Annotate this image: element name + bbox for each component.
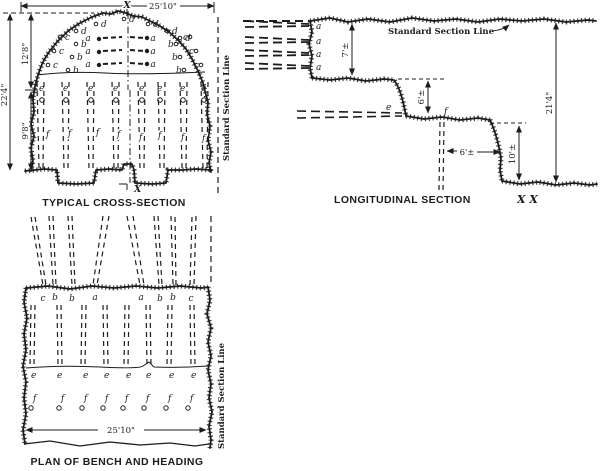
- hole-letter-f: f: [32, 394, 38, 404]
- hole-letter-a: a: [85, 34, 90, 44]
- plan-caption: PLAN OF BENCH AND HEADING: [31, 456, 204, 468]
- hole-letter-f: f: [138, 133, 144, 143]
- lower-bench-label: 10'±: [508, 144, 518, 164]
- hole-letter-d: d: [101, 20, 107, 30]
- hole-letter-a: a: [150, 34, 155, 44]
- hole-letter-e: e: [169, 371, 174, 381]
- hole-letter-f: f: [83, 394, 89, 404]
- hole-letter-c: c: [65, 33, 70, 43]
- hole-letter-d: d: [129, 15, 135, 25]
- hole-letter-e: e: [139, 84, 144, 94]
- hole-letter-f: f: [104, 394, 110, 404]
- tunnel-blasting-figure: 25'10" X 22'4" 12'8" 9'8" X d d d: [0, 0, 600, 471]
- cross-section-panel: 25'10" X 22'4" 12'8" 9'8" X d d d: [0, 0, 232, 209]
- hole-letter-f: f: [157, 131, 163, 141]
- a-cut-holes: a a a a a a: [85, 34, 155, 70]
- hole-letter-e: e: [126, 371, 131, 381]
- hole-letter: b: [157, 294, 163, 304]
- break-line: [24, 441, 209, 446]
- section-line-label: Standard Section Line: [222, 54, 232, 161]
- heading-fan-holes: [31, 216, 196, 285]
- cross-section-caption: TYPICAL CROSS-SECTION: [42, 197, 186, 209]
- standard-section-line: Standard Section Line: [218, 17, 232, 193]
- total-height-label: 22'4": [0, 84, 10, 107]
- hole-letter: c: [40, 294, 45, 304]
- section-line-label: Standard Section Line: [388, 27, 495, 37]
- f-holes: f f f f f f f f: [45, 128, 207, 144]
- hole-letter-e: e: [386, 103, 391, 113]
- hole-letter: b: [69, 294, 75, 304]
- hole-letter-e: e: [191, 371, 196, 381]
- hole-letter-e: e: [88, 84, 93, 94]
- hole-letter-f: f: [116, 130, 122, 140]
- hole-letter: a: [92, 293, 97, 303]
- hole-letter-f: f: [167, 394, 173, 404]
- longitudinal-caption: LONGITUDINAL SECTION X X: [334, 193, 538, 206]
- hole-letter-e: e: [146, 371, 151, 381]
- hole-letter-a: a: [316, 63, 321, 73]
- hole-letter-f: f: [180, 133, 186, 143]
- hole-letter-f: f: [60, 394, 66, 404]
- hole-letter-c: c: [194, 61, 199, 71]
- e-holes: e e e e e e e e: [31, 371, 196, 381]
- plan-rock-edges: [23, 286, 212, 448]
- hole-letter-a: a: [85, 47, 90, 57]
- hole-letter: b: [170, 293, 176, 303]
- plan-width-dimension: 25'10": [26, 426, 206, 436]
- section-marker-bottom: X: [133, 184, 142, 195]
- height-dimensions: 22'4" 12'8" 9'8": [0, 13, 94, 170]
- hole-letter-a: a: [150, 47, 155, 57]
- hole-letter-a: a: [316, 37, 321, 47]
- section-line-label: Standard Section Line: [217, 342, 227, 449]
- hole-letter-e: e: [83, 371, 88, 381]
- hole-letter-c: c: [183, 33, 188, 43]
- hole-letter-f: f: [145, 394, 151, 404]
- bench-hole-lines: [37, 82, 208, 168]
- hole-letter-a: a: [85, 60, 90, 70]
- figure-canvas: 25'10" X 22'4" 12'8" 9'8" X d d d: [0, 0, 600, 471]
- hole-letter: b: [52, 293, 58, 303]
- face-letter-row: c b b a a b b c: [40, 293, 193, 304]
- burden-label: 6'±: [460, 148, 475, 158]
- longitudinal-section-panel: a a a a e f 7'± 6'± 6'±: [243, 18, 597, 206]
- plan-panel: c b b a a b b c e e e e e e: [23, 216, 227, 468]
- hole-letter-c: c: [189, 47, 194, 57]
- upper-bench-label: 6'±: [417, 90, 427, 105]
- hole-letter-b: b: [73, 66, 79, 76]
- hole-letter-b: b: [77, 53, 83, 63]
- hole-letter-f: f: [201, 134, 207, 144]
- hole-letter-f: f: [67, 129, 73, 139]
- hole-letter: c: [188, 294, 193, 304]
- b-holes: b b b b b b: [66, 40, 186, 76]
- width-dim-label: 25'10": [107, 426, 135, 436]
- bench-edge-line: [26, 362, 208, 368]
- bench-e-hole: e: [297, 103, 402, 118]
- hole-letter-e: e: [31, 371, 36, 381]
- e-holes: e e e e e e e e: [39, 84, 206, 102]
- heading-height-label: 12'8": [21, 43, 31, 66]
- hole-letter-f: f: [189, 394, 195, 404]
- hole-letter-f: f: [124, 394, 130, 404]
- hole-letter-e: e: [57, 371, 62, 381]
- hole-letter-f: f: [95, 128, 101, 138]
- hole-letter-f: f: [45, 130, 51, 140]
- longitudinal-dimensions: 7'± 6'± 6'± 10'± 21'4": [341, 23, 556, 182]
- hole-letter-c: c: [59, 47, 64, 57]
- hole-letter: a: [138, 293, 143, 303]
- hole-letter-a: a: [316, 50, 321, 60]
- hole-letter-c: c: [53, 61, 58, 71]
- hole-letter-e: e: [104, 371, 109, 381]
- standard-section-line-callout: Standard Section Line: [388, 25, 509, 37]
- hole-letter-b: b: [176, 66, 182, 76]
- hole-letter-b: b: [168, 40, 174, 50]
- hole-letter-d: d: [172, 27, 178, 37]
- total-height-label: 21'4": [545, 92, 555, 115]
- caption-marker: X X: [516, 193, 538, 206]
- hole-letter-a: a: [316, 22, 321, 32]
- hole-letter-a: a: [150, 60, 155, 70]
- caption-text: LONGITUDINAL SECTION: [334, 194, 471, 206]
- hole-letter-d: d: [153, 20, 159, 30]
- bench-hole-lines: [30, 305, 195, 365]
- heading-height-label: 7'±: [341, 43, 351, 58]
- width-dim-label: 25'10": [149, 2, 177, 12]
- hole-letter-e: e: [63, 84, 68, 94]
- hole-letter-e: e: [113, 84, 118, 94]
- f-holes: f f f f f f f f: [29, 394, 195, 410]
- bench-height-label: 9'8": [21, 122, 31, 139]
- hole-letter-b: b: [172, 53, 178, 63]
